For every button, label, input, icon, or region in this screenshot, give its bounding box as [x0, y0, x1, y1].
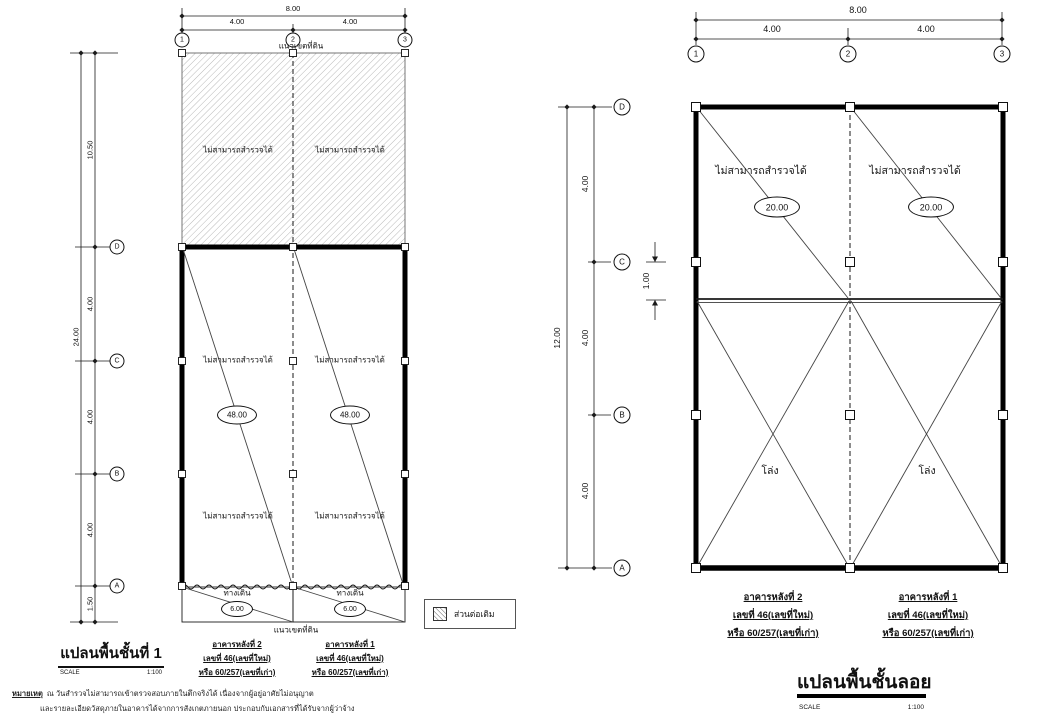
- p1-dim-total-width: 8.00: [286, 5, 301, 13]
- hatched-square-icon: [433, 607, 447, 621]
- p1-dim-seg-cb: 4.00: [86, 410, 95, 425]
- p2-bay-area-right: 20.00: [908, 197, 954, 218]
- p2-dimension-ticks: [564, 17, 1004, 570]
- p2-grid-bubble-C: C: [614, 254, 631, 271]
- p1-bay-area-left: 48.00: [217, 406, 257, 425]
- p1-walkway-label-left: ทางเดิน: [223, 590, 250, 599]
- building-addr-new: เลขที่ 46(เลขที่ใหม่): [727, 607, 818, 625]
- p1-title: แปลนพื้นชั้นที่ 1: [58, 641, 164, 668]
- p2-dim-seg-1m: 1.00: [641, 273, 651, 290]
- p2-no-survey-left: ไม่สามารถสำรวจได้: [715, 166, 806, 178]
- p1-scale-value: 1:100: [147, 670, 162, 676]
- footnote: หมายเหตุณ วันสำรวจไม่สามารถเข้าตรวจสอบภา…: [12, 686, 355, 716]
- building-name: อาคารหลังที่ 1: [882, 589, 973, 607]
- p2-scale-value: 1:100: [908, 704, 924, 711]
- p1-grid-bubble-B: B: [110, 467, 125, 482]
- p2-dim-seg-ba: 4.00: [580, 483, 590, 500]
- p1-grid-bubble-A: A: [110, 579, 125, 594]
- footnote-line-2: และรายละเอียดวัสดุภายในอาคารได้จากการสัง…: [40, 701, 355, 716]
- p1-grid-bubble-C: C: [110, 354, 125, 369]
- p1-no-survey-hatch-left: ไม่สามารถสำรวจได้: [203, 147, 273, 156]
- p1-no-survey-hatch-right: ไม่สามารถสำรวจได้: [315, 147, 385, 156]
- p1-walkway-area-left: 6.00: [221, 601, 253, 617]
- p1-walkway: [182, 587, 405, 622]
- building-addr-old: หรือ 60/257(เลขที่เก่า): [312, 666, 389, 680]
- p1-grid-bubble-1: 1: [175, 33, 190, 48]
- building-name: อาคารหลังที่ 2: [727, 589, 818, 607]
- p2-dim-bay-right: 4.00: [917, 25, 935, 35]
- p2-scale-label: SCALE: [799, 704, 820, 711]
- building-name: อาคารหลังที่ 2: [199, 638, 276, 652]
- building-addr-old: หรือ 60/257(เลขที่เก่า): [882, 625, 973, 643]
- legend-extension-label: ส่วนต่อเติม: [454, 607, 494, 621]
- p1-no-survey-mid-left: ไม่สามารถสำรวจได้: [203, 357, 273, 366]
- p1-building-2-label: อาคารหลังที่ 2 เลขที่ 46(เลขที่ใหม่) หรื…: [199, 638, 276, 680]
- p2-dim-seg-dc: 4.00: [580, 176, 590, 193]
- p2-dim-total-height: 12.00: [552, 327, 562, 348]
- p1-title-block: แปลนพื้นชั้นที่ 1 SCALE 1:100: [58, 641, 164, 676]
- p1-grid-bubble-D: D: [110, 240, 125, 255]
- p2-grid-bubble-3: 3: [994, 46, 1011, 63]
- p2-dim-seg-cb: 4.00: [580, 330, 590, 347]
- p1-scale-label: SCALE: [60, 670, 80, 676]
- p1-dim-bay-left: 4.00: [230, 18, 245, 26]
- p1-bay-area-right: 48.00: [330, 406, 370, 425]
- p1-boundary-label-top: แนวเขตที่ดิน: [279, 43, 323, 52]
- p1-grid-bubble-3: 3: [398, 33, 413, 48]
- p2-open-label-left: โล่ง: [761, 466, 778, 478]
- footnote-line-1: หมายเหตุณ วันสำรวจไม่สามารถเข้าตรวจสอบภา…: [12, 686, 355, 701]
- building-addr-old: หรือ 60/257(เลขที่เก่า): [199, 666, 276, 680]
- p2-grid-bubble-2: 2: [840, 46, 857, 63]
- p1-building-1-label: อาคารหลังที่ 1 เลขที่ 46(เลขที่ใหม่) หรื…: [312, 638, 389, 680]
- p1-no-survey-mid-right: ไม่สามารถสำรวจได้: [315, 357, 385, 366]
- p2-title: แปลนพื้นชั้นลอย: [797, 667, 926, 697]
- p2-grid-bubble-B: B: [614, 407, 631, 424]
- p1-walkway-area-right: 6.00: [334, 601, 366, 617]
- p2-grid-bubble-A: A: [614, 560, 631, 577]
- p2-title-block: แปลนพื้นชั้นลอย SCALE 1:100: [797, 667, 926, 711]
- building-addr-new: เลขที่ 46(เลขที่ใหม่): [882, 607, 973, 625]
- p2-dim-bay-left: 4.00: [763, 25, 781, 35]
- p2-no-survey-right: ไม่สามารถสำรวจได้: [869, 166, 960, 178]
- p2-bay-area-left: 20.00: [754, 197, 800, 218]
- building-name: อาคารหลังที่ 1: [312, 638, 389, 652]
- p1-dim-seg-top: 10.50: [86, 141, 95, 160]
- p2-open-label-right: โล่ง: [918, 466, 935, 478]
- p1-dim-total-height: 24.00: [72, 328, 81, 347]
- p1-boundary-label-bottom: แนวเขตที่ดิน: [274, 627, 318, 636]
- p2-building-1-label: อาคารหลังที่ 1 เลขที่ 46(เลขที่ใหม่) หรื…: [882, 589, 973, 643]
- p1-dim-bay-right: 4.00: [343, 18, 358, 26]
- building-addr-new: เลขที่ 46(เลขที่ใหม่): [199, 652, 276, 666]
- building-addr-old: หรือ 60/257(เลขที่เก่า): [727, 625, 818, 643]
- p1-no-survey-low-left: ไม่สามารถสำรวจได้: [203, 513, 273, 522]
- p2-dim-total-width: 8.00: [849, 6, 867, 16]
- p2-grid-bubble-D: D: [614, 99, 631, 116]
- p1-walkway-label-right: ทางเดิน: [336, 590, 363, 599]
- legend-box: ส่วนต่อเติม: [424, 599, 516, 629]
- p1-no-survey-low-right: ไม่สามารถสำรวจได้: [315, 513, 385, 522]
- footnote-text-1: ณ วันสำรวจไม่สามารถเข้าตรวจสอบภายในตึกจร…: [47, 689, 314, 698]
- building-addr-new: เลขที่ 46(เลขที่ใหม่): [312, 652, 389, 666]
- p2-grid-bubble-1: 1: [688, 46, 705, 63]
- drawing-sheet: 8.00 4.00 4.00 1 2 3 แนวเขตที่ดิน ไม่สาม…: [0, 0, 1040, 720]
- p1-dim-seg-walk: 1.50: [86, 597, 95, 612]
- p1-dim-seg-dc: 4.00: [86, 297, 95, 312]
- p1-dim-seg-ba: 4.00: [86, 523, 95, 538]
- footnote-heading: หมายเหตุ: [12, 689, 43, 698]
- p2-building-2-label: อาคารหลังที่ 2 เลขที่ 46(เลขที่ใหม่) หรื…: [727, 589, 818, 643]
